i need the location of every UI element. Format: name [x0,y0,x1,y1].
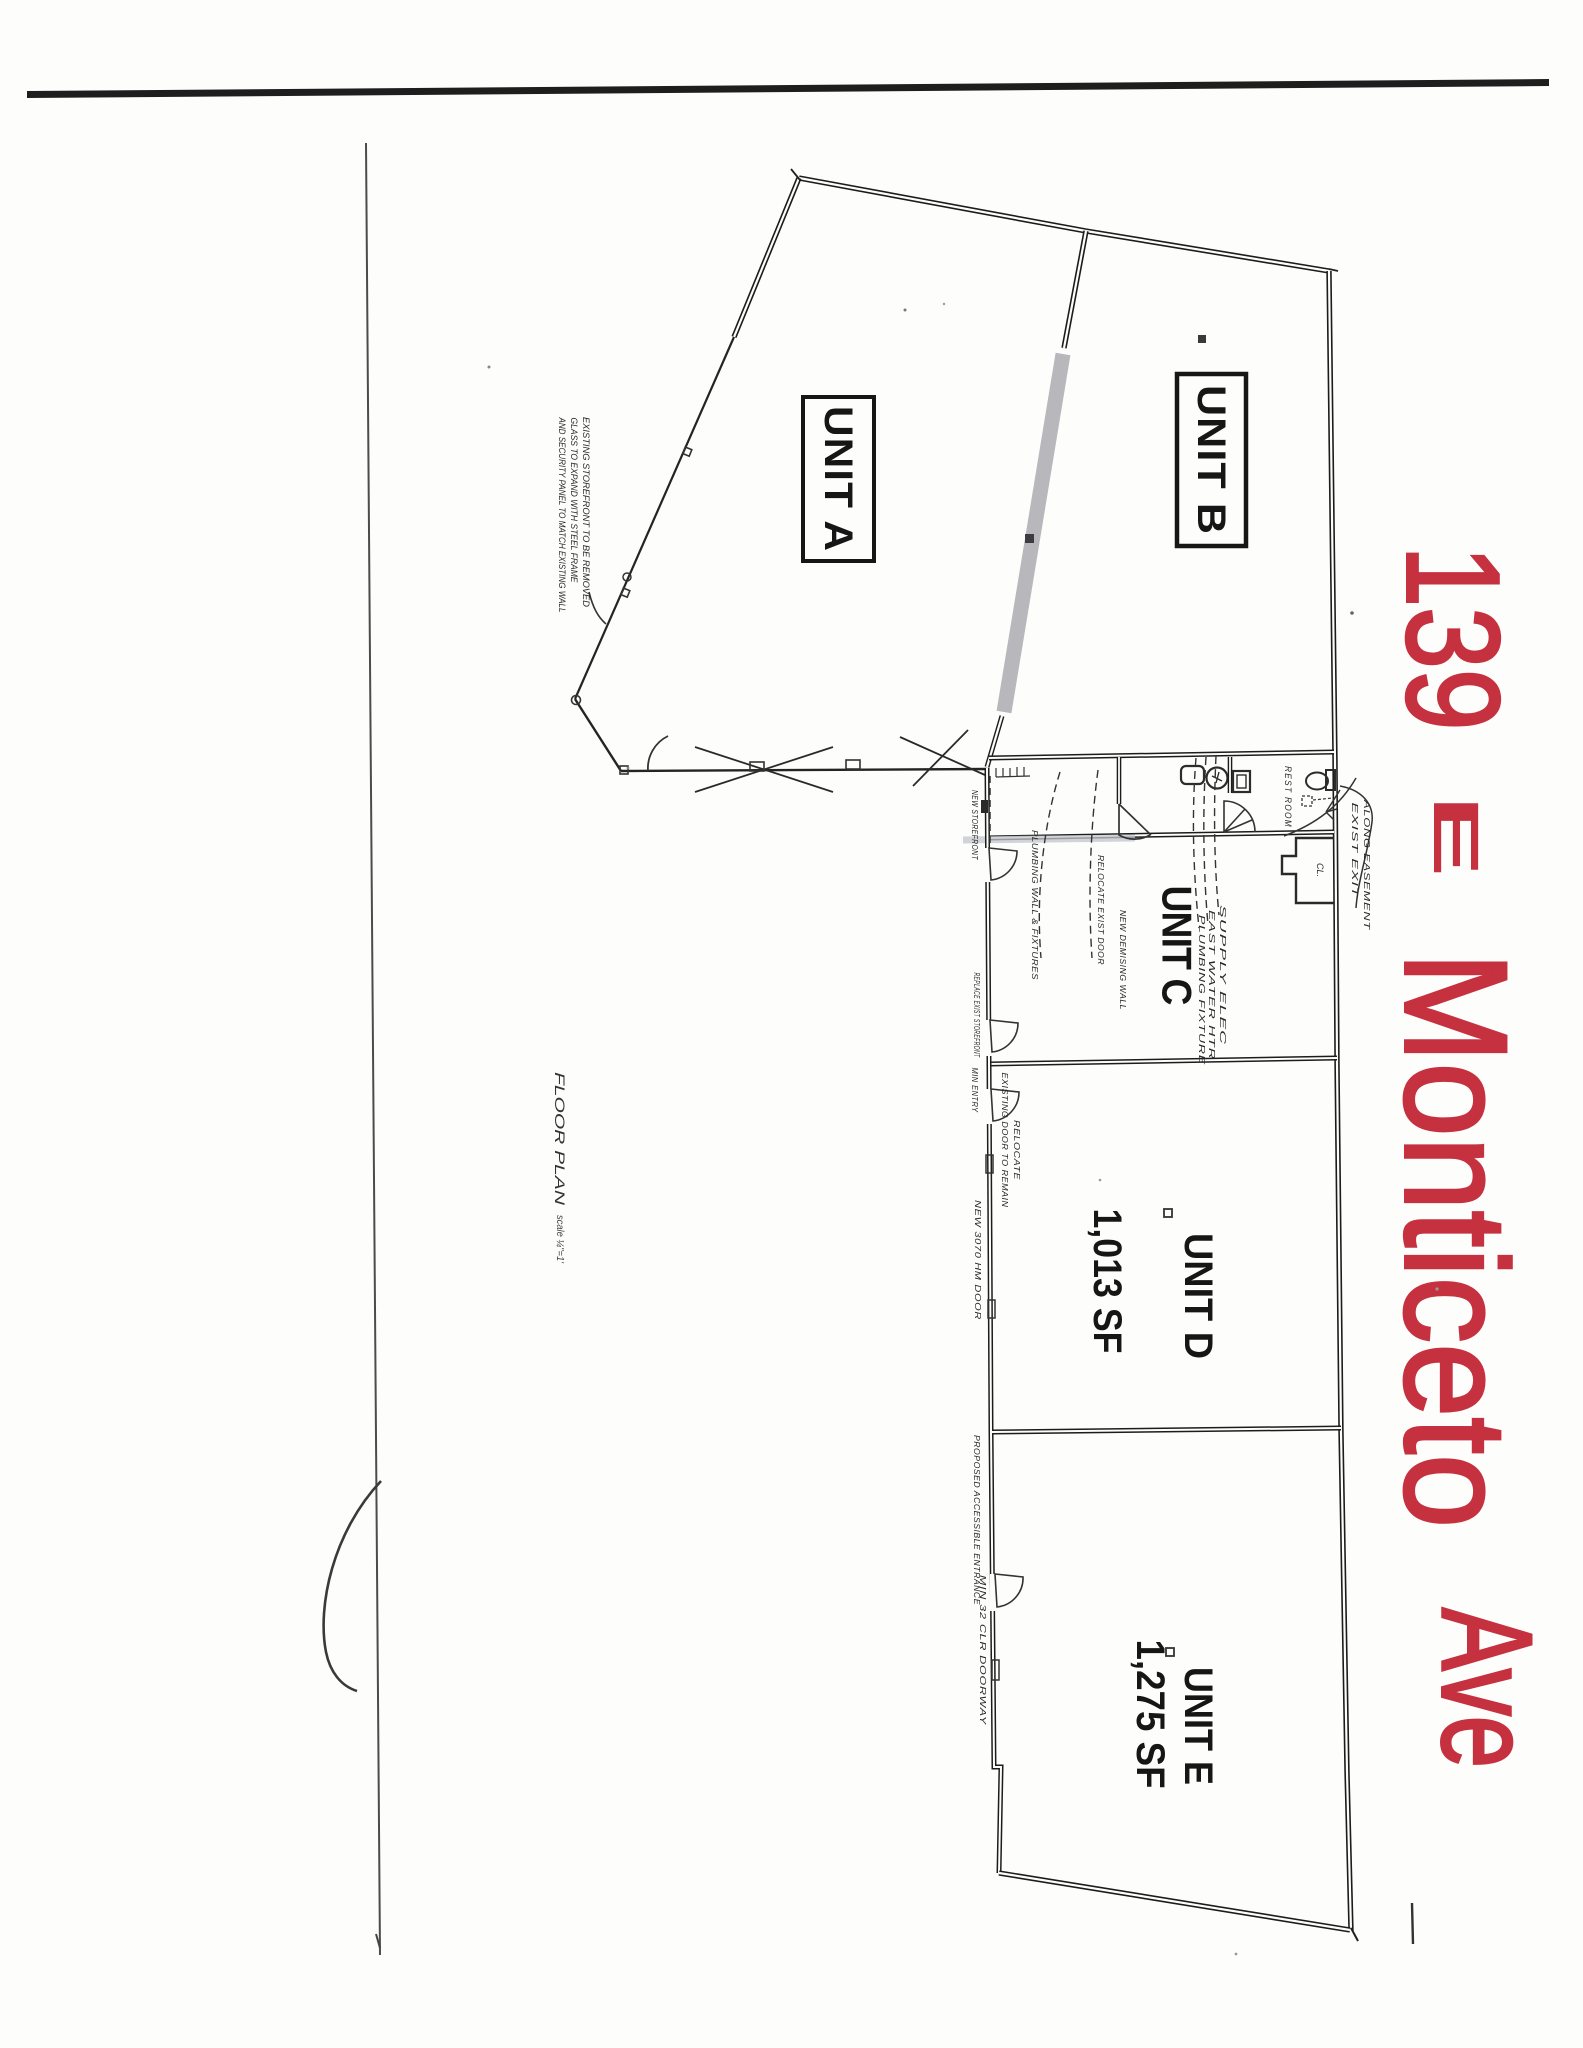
svg-text:UNIT B: UNIT B [1189,385,1233,535]
svg-text:EXISTING STOREFRONT TO BE REMO: EXISTING STOREFRONT TO BE REMOVED [581,417,591,608]
svg-text:EAST WATER HTR: EAST WATER HTR [1207,910,1217,1060]
svg-text:UNIT E: UNIT E [1176,1667,1220,1785]
svg-text:UNIT A: UNIT A [816,406,860,552]
svg-text:MIN 32 CLR DOORWAY: MIN 32 CLR DOORWAY [978,1575,988,1726]
svg-text:CL.: CL. [1315,863,1325,877]
svg-text:UNIT C: UNIT C [1154,886,1201,1006]
svg-text:EXISTING DOOR TO REMAIN: EXISTING DOOR TO REMAIN [1000,1073,1010,1208]
svg-text:RELOCATE: RELOCATE [1012,1120,1022,1180]
svg-text:1,013 SF: 1,013 SF [1085,1209,1129,1354]
svg-text:MIN ENTRY: MIN ENTRY [970,1068,980,1114]
svg-text:PLUMBING WALL & FIXTURES: PLUMBING WALL & FIXTURES [1030,830,1040,980]
svg-text:FLOOR PLAN: FLOOR PLAN [552,1072,568,1206]
svg-text:139: 139 [1380,546,1527,731]
svg-text:GLASS TO EXPAND WITH STEEL FRA: GLASS TO EXPAND WITH STEEL FRAME [569,418,579,584]
svg-text:scale ¼"=1': scale ¼"=1' [554,1215,566,1264]
svg-text:NEW STOREFRONT: NEW STOREFRONT [970,790,980,860]
svg-text:SUPPLY ELEC: SUPPLY ELEC [1218,905,1228,1046]
svg-text:NEW 3070 HM DOOR: NEW 3070 HM DOOR [973,1200,983,1320]
svg-text:AND SECURITY PANEL TO MATCH EX: AND SECURITY PANEL TO MATCH EXISTING WAL… [557,417,567,613]
svg-text:EXIST EXIT: EXIST EXIT [1350,803,1360,899]
svg-text:Ave: Ave [1415,1608,1558,1768]
svg-text:REPLACE EXIST STOREFRONT: REPLACE EXIST STOREFRONT [972,973,982,1058]
svg-text:ALONG EASEMENT: ALONG EASEMENT [1362,798,1372,930]
svg-text:RELOCATE EXIST DOOR: RELOCATE EXIST DOOR [1096,855,1106,965]
svg-text:PLUMBING FIXTURE: PLUMBING FIXTURE [1197,915,1207,1065]
svg-text:NEW DEMISING WALL: NEW DEMISING WALL [1118,910,1128,1010]
svg-text:E: E [1420,795,1492,877]
svg-text:Monticeto: Monticeto [1375,952,1538,1528]
svg-text:UNIT D: UNIT D [1176,1233,1220,1359]
svg-text:REST ROOM: REST ROOM [1282,766,1293,828]
svg-text:1,275 SF: 1,275 SF [1128,1640,1172,1789]
